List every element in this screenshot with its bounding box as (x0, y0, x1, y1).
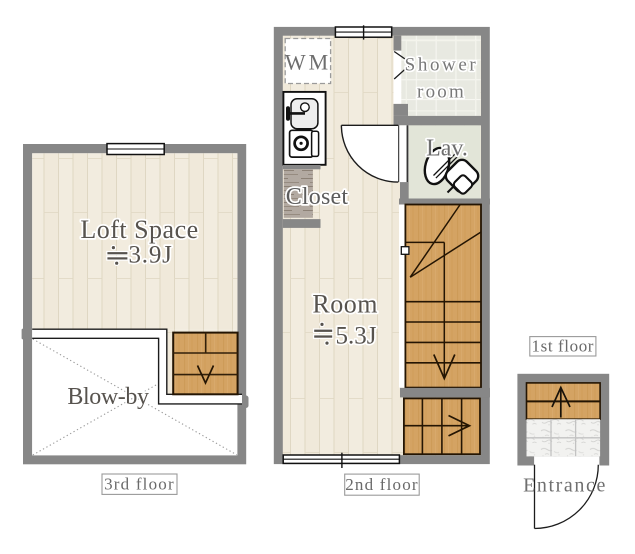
svg-text:2nd floor: 2nd floor (345, 475, 419, 494)
svg-text:room: room (417, 81, 466, 102)
svg-text:Entrance: Entrance (523, 474, 607, 496)
svg-text:WM: WM (285, 50, 331, 75)
svg-text:1st floor: 1st floor (532, 337, 595, 356)
svg-text:Shower: Shower (405, 55, 479, 76)
svg-text:5.3J: 5.3J (336, 322, 377, 349)
svg-text:3rd floor: 3rd floor (104, 475, 175, 494)
svg-text:Blow-by: Blow-by (67, 384, 149, 410)
svg-text:Room: Room (312, 290, 378, 319)
svg-text:Loft Space: Loft Space (80, 215, 198, 244)
svg-text:Lav.: Lav. (426, 136, 468, 162)
svg-text:Closet: Closet (286, 184, 349, 210)
svg-text:3.9J: 3.9J (129, 242, 173, 269)
